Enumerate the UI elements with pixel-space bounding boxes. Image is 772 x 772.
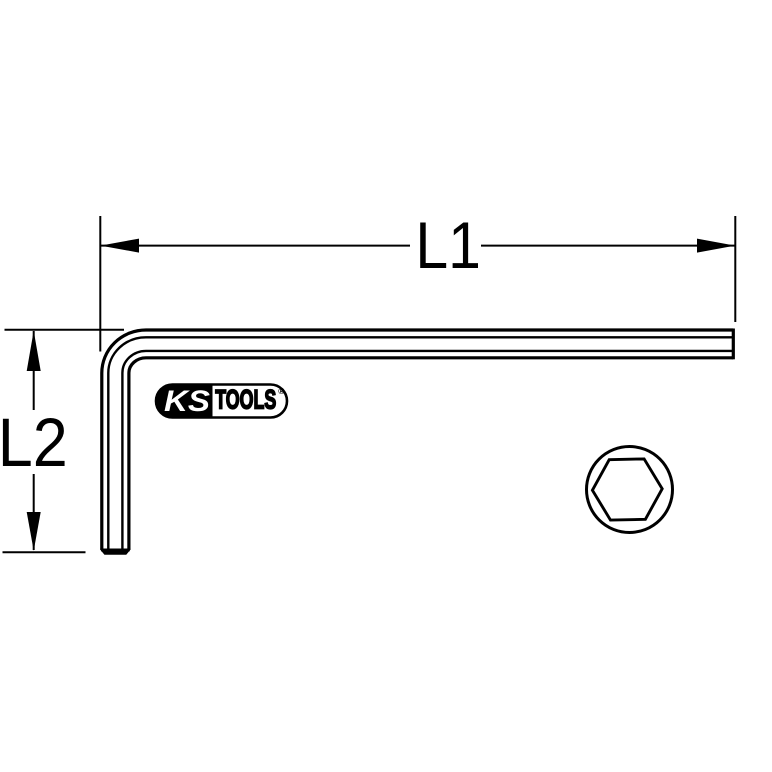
svg-text:L1: L1	[415, 209, 481, 282]
svg-text:TOOLS: TOOLS	[215, 384, 276, 414]
svg-text:KS: KS	[164, 385, 210, 418]
svg-text:®: ®	[278, 386, 285, 396]
svg-text:L2: L2	[0, 404, 68, 481]
